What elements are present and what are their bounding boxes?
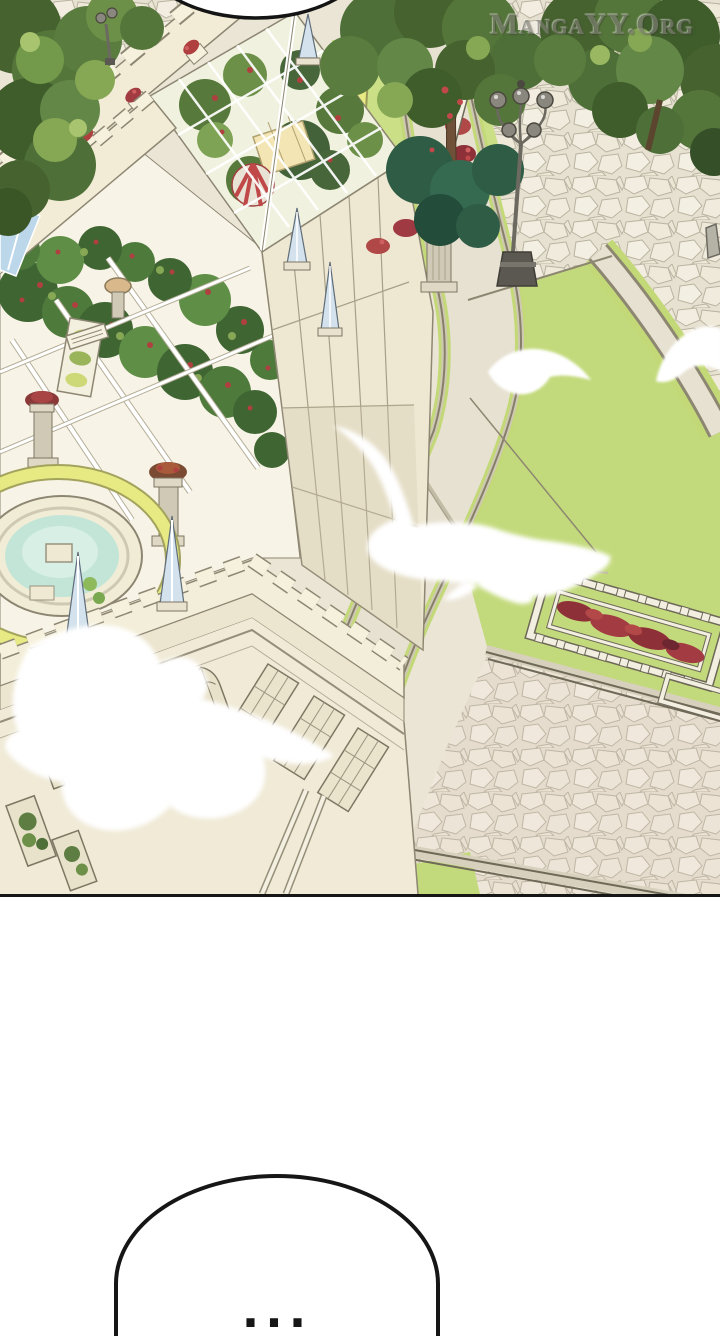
webtoon-page: MangaYY.Org ... xyxy=(0,0,720,1336)
speech-bubble-bottom: ... xyxy=(114,1174,440,1336)
comic-panel-aerial-garden: MangaYY.Org xyxy=(0,0,720,897)
garden-illustration xyxy=(0,0,720,894)
speech-bubble-text: ... xyxy=(242,1288,312,1334)
